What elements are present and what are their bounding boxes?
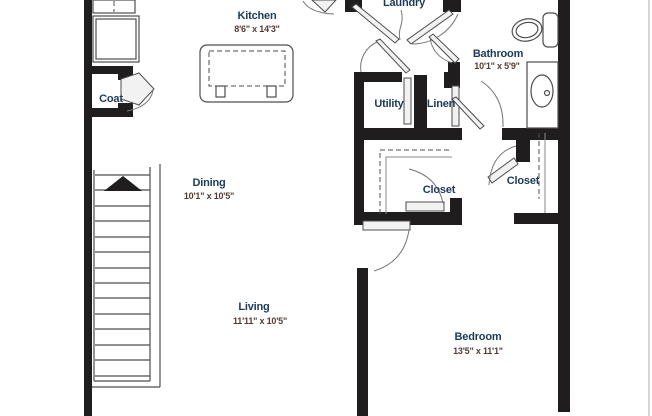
label-closet-left: Closet (423, 184, 456, 196)
wall-right-exterior (558, 0, 570, 412)
toilet-bowl (510, 16, 544, 44)
island-stool-right (267, 86, 276, 97)
wall-left-exterior (84, 0, 92, 416)
label-closet-right: Closet (507, 175, 540, 187)
closet-left-door-leaf (406, 202, 444, 211)
utility-door-leaf (404, 78, 411, 124)
toilet-tank (543, 13, 558, 47)
floor-plan-drawing: Laundry Kitchen 8'6" x 14'3" Coat Bathro… (0, 0, 652, 416)
utility-hall-door-leaf (376, 39, 410, 73)
label-living: Living (238, 301, 269, 313)
wall-utility-linen-bottom (354, 128, 462, 140)
dims-dining: 10'1" x 10'5" (184, 191, 234, 201)
kitchen-island (200, 45, 293, 102)
stair-direction-arrow-icon (104, 176, 142, 191)
wall-bathroom-door-jamb (448, 62, 460, 78)
label-kitchen: Kitchen (238, 10, 277, 22)
dims-living: 11'11" x 10'5" (233, 316, 287, 326)
laundry-door-leaf-left (352, 4, 399, 43)
label-linen: Linen (427, 98, 456, 110)
wall-utility-closet-left (354, 72, 364, 225)
label-bathroom: Bathroom (473, 48, 524, 60)
island-stool-left (216, 86, 225, 97)
toilet (510, 16, 544, 44)
label-coat: Coat (99, 93, 123, 105)
kitchen-appliances (93, 0, 139, 62)
label-bedroom: Bedroom (455, 331, 502, 343)
wall-laundry-stub-right (443, 0, 461, 12)
floor-plan: Laundry Kitchen 8'6" x 14'3" Coat Bathro… (0, 0, 652, 416)
room-labels: Laundry Kitchen 8'6" x 14'3" Coat Bathro… (99, 0, 540, 356)
dims-bedroom: 13'5" x 11'1" (453, 346, 503, 356)
island-counter (200, 45, 293, 102)
label-laundry: Laundry (383, 0, 426, 9)
dims-bathroom: 10'1" x 5'9" (474, 61, 519, 71)
vestibule-door-arc (481, 81, 503, 127)
label-utility: Utility (374, 98, 404, 110)
wall-utility-top (354, 72, 402, 82)
bedroom-door-arc (374, 230, 409, 271)
dims-kitchen: 8'6" x 14'3" (234, 24, 279, 34)
refrigerator (93, 16, 139, 62)
staircase (92, 164, 160, 387)
utility-hall-door-arc (361, 42, 377, 72)
kitchen-hall-door-leaf (312, 0, 336, 12)
wall-bedroom-left (357, 268, 368, 416)
laundry-door-meeting-mark (399, 10, 402, 40)
label-dining: Dining (192, 177, 225, 189)
bedroom-door-leaf (363, 221, 410, 230)
stair-treads (95, 175, 150, 376)
